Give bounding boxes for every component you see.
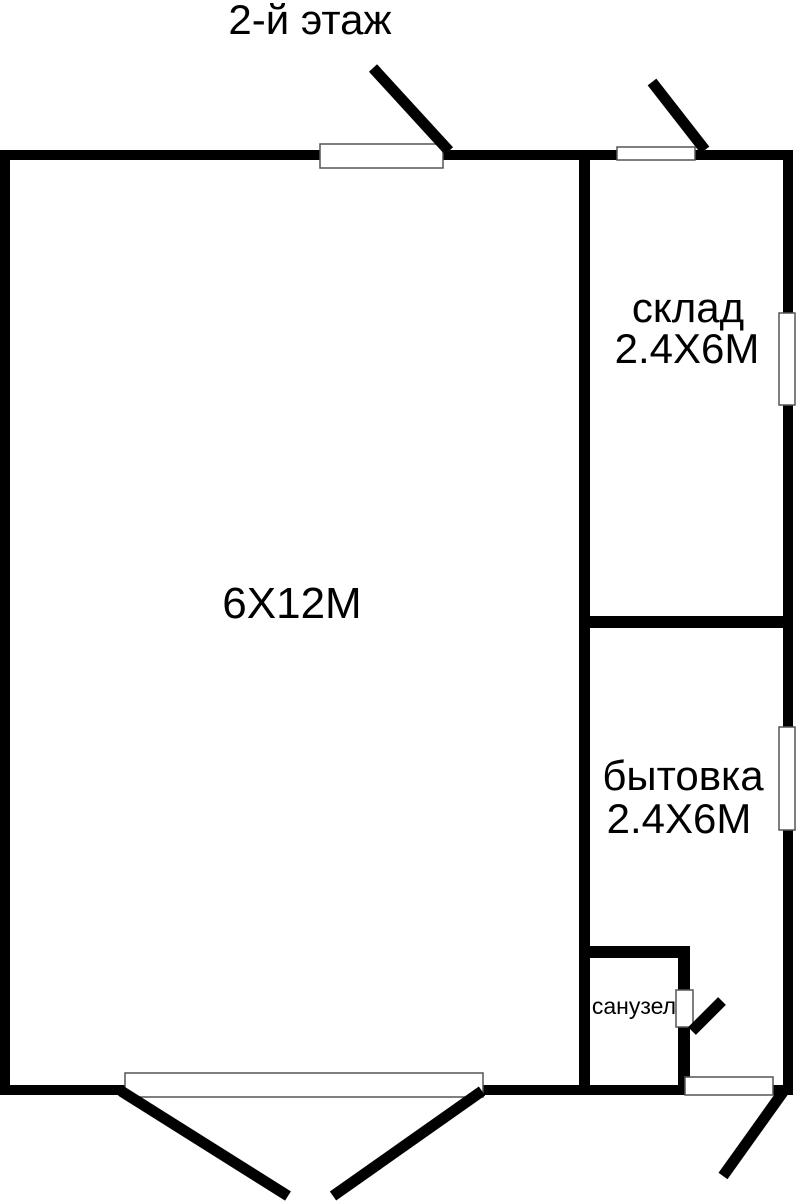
door-opening-bathroom <box>676 990 693 1027</box>
room-label-utility-size: 2.4Х6М <box>607 795 752 842</box>
wall-left <box>0 150 10 1095</box>
wall-storage-utility-divider <box>579 616 793 628</box>
door-opening-utility-bottom <box>685 1077 773 1095</box>
wall-bathroom-right-upper <box>678 946 690 992</box>
room-label-utility-name: бытовка <box>602 752 764 799</box>
room-label-bathroom: санузел <box>592 993 676 1019</box>
floor-plan-drawing: 2-й этаж 6Х12М склад 2.4Х6М бытовка 2.4Х… <box>0 0 800 1203</box>
door-opening-storage-top <box>617 147 695 160</box>
room-label-storage-name: склад <box>632 284 744 331</box>
floor-plan-page: 2-й этаж 6Х12М склад 2.4Х6М бытовка 2.4Х… <box>0 0 800 1203</box>
door-opening-main-bottom <box>125 1073 483 1097</box>
door-opening-main-top <box>320 144 443 168</box>
window-utility <box>779 727 795 830</box>
room-label-storage-size: 2.4Х6М <box>615 325 760 372</box>
wall-bathroom-top <box>579 946 690 958</box>
room-label-main: 6Х12М <box>222 579 361 628</box>
window-storage <box>779 313 795 405</box>
plan-title: 2-й этаж <box>228 0 391 43</box>
